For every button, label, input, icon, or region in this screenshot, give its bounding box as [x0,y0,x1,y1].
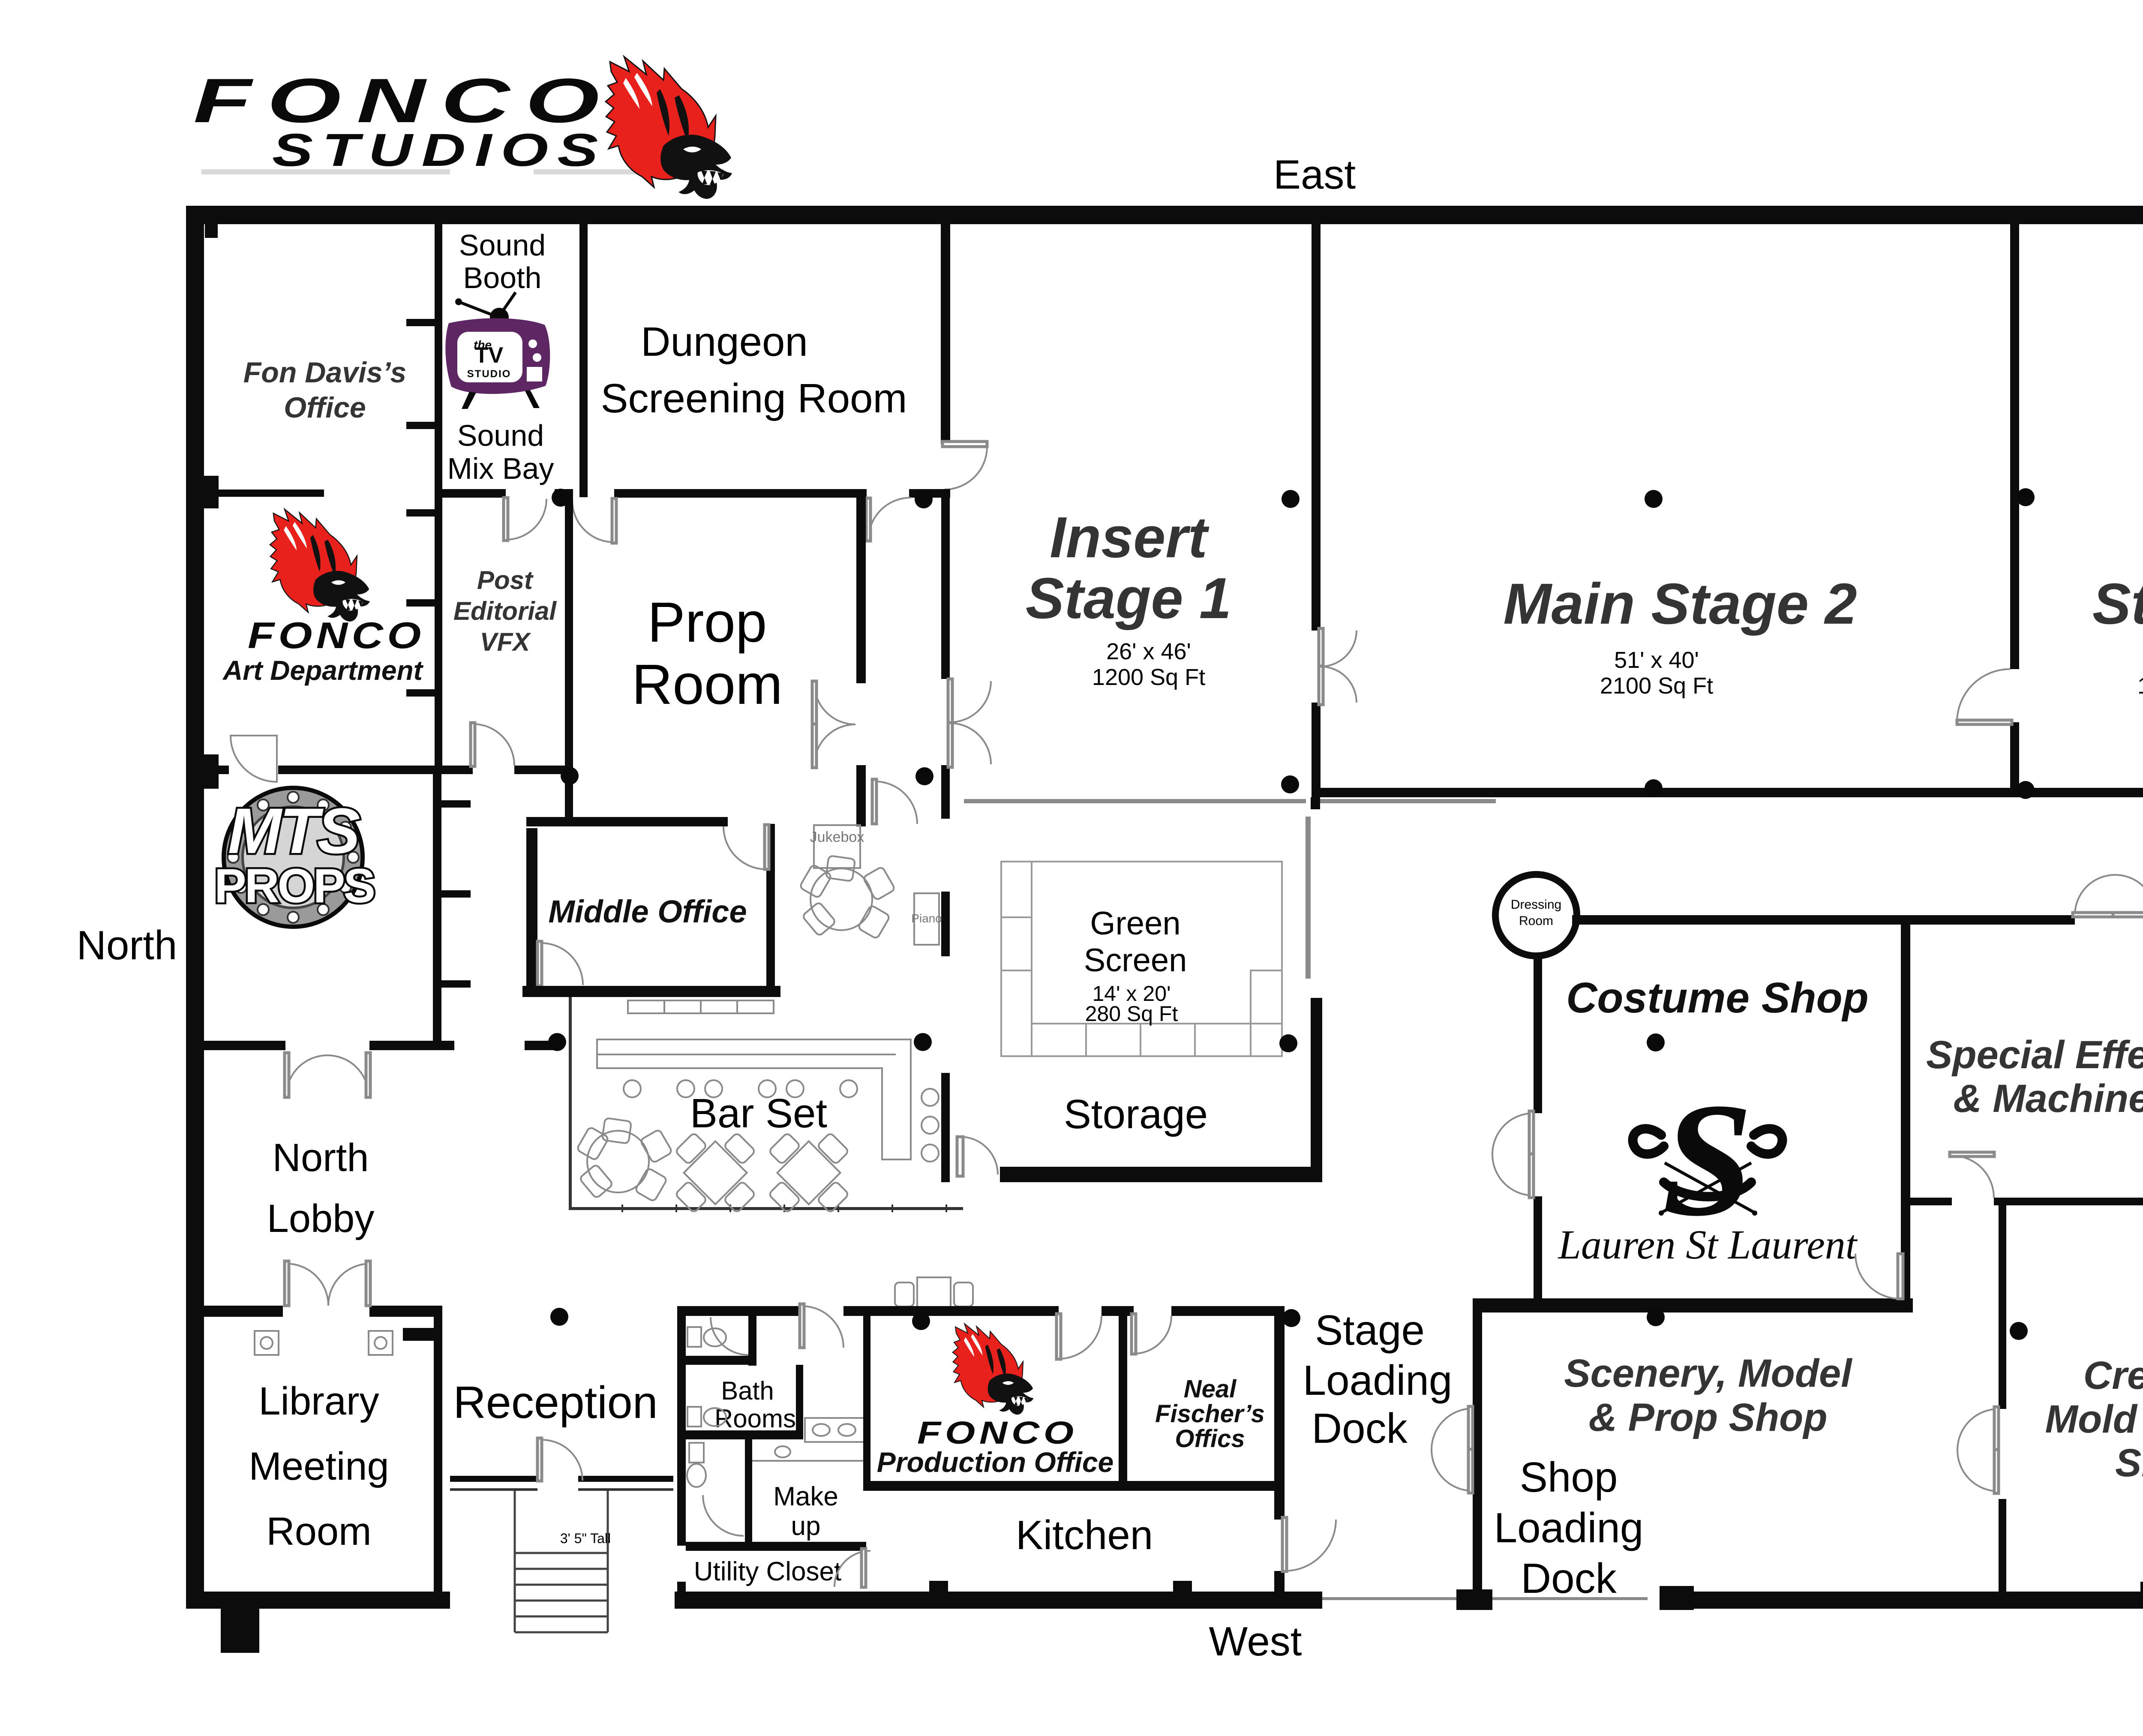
svg-text:Make: Make [773,1482,838,1511]
svg-text:up: up [791,1511,821,1541]
svg-text:Production Office: Production Office [877,1446,1114,1478]
svg-text:Middle Office: Middle Office [548,894,747,929]
svg-text:26' x 46': 26' x 46' [1106,639,1191,664]
svg-text:North: North [77,922,177,968]
svg-text:Office: Office [284,391,366,424]
svg-text:Main Stage 2: Main Stage 2 [1503,571,1857,636]
svg-text:Prop: Prop [648,591,767,654]
svg-text:Fon Davis’s: Fon Davis’s [243,356,406,389]
svg-text:Meeting: Meeting [249,1445,389,1488]
svg-text:Screen: Screen [1084,942,1187,979]
svg-text:FONCO: FONCO [917,1415,1078,1451]
svg-text:Offics: Offics [1175,1425,1245,1453]
svg-text:West: West [1209,1619,1302,1664]
svg-text:Costume Shop: Costume Shop [1566,974,1869,1022]
svg-text:Shop: Shop [2115,1441,2143,1485]
svg-text:51' x 40': 51' x 40' [1614,647,1699,673]
svg-text:Insert: Insert [1050,505,1210,570]
svg-text:Jukebox: Jukebox [810,829,864,845]
svg-text:FONCO: FONCO [248,615,425,656]
svg-text:Neal: Neal [1184,1375,1237,1403]
svg-text:Utility Closet: Utility Closet [694,1557,842,1586]
svg-text:Dock: Dock [1312,1405,1408,1452]
svg-text:& Machine Shop: & Machine Shop [1953,1077,2143,1120]
svg-text:Piano: Piano [911,912,942,925]
svg-text:Library: Library [258,1379,379,1423]
svg-text:MTS: MTS [228,795,360,867]
svg-text:TV: TV [475,343,504,368]
svg-text:Stage 1: Stage 1 [1026,566,1231,631]
svg-text:Room: Room [1519,914,1553,928]
svg-text:Stage: Stage [1315,1307,1425,1354]
svg-text:Dungeon: Dungeon [641,319,808,365]
svg-text:PROPS: PROPS [214,859,374,913]
svg-text:& Prop Shop: & Prop Shop [1588,1396,1827,1439]
svg-text:Booth: Booth [463,261,542,294]
svg-text:Dressing: Dressing [1511,898,1561,912]
svg-text:Shop: Shop [1520,1454,1618,1501]
svg-text:Reception: Reception [453,1377,657,1428]
svg-text:Scenery, Model: Scenery, Model [1564,1352,1853,1395]
svg-text:Green: Green [1090,905,1180,942]
svg-text:Loading: Loading [1303,1357,1453,1404]
svg-text:Room: Room [632,653,783,716]
svg-text:Bar Set: Bar Set [690,1090,827,1136]
svg-text:Mold & Paint: Mold & Paint [2045,1397,2143,1441]
svg-text:Dock: Dock [1521,1555,1617,1602]
svg-text:STUDIOS: STUDIOS [272,124,607,176]
svg-text:Fischer’s: Fischer’s [1155,1400,1265,1428]
svg-text:1200 Sq Ft: 1200 Sq Ft [1092,664,1205,690]
svg-text:Lobby: Lobby [267,1197,375,1240]
svg-text:STUDIO: STUDIO [467,368,511,380]
svg-text:Kitchen: Kitchen [1016,1512,1153,1558]
svg-text:2100 Sq Ft: 2100 Sq Ft [1600,673,1713,699]
svg-text:Storage: Storage [1064,1091,1208,1137]
svg-text:Editorial: Editorial [453,597,557,625]
svg-text:1100 Sq Ft: 1100 Sq Ft [2137,673,2143,699]
svg-text:VFX: VFX [480,628,532,656]
svg-text:Room: Room [266,1510,371,1553]
svg-text:Lauren St Laurent: Lauren St Laurent [1558,1222,1858,1267]
svg-text:Screening Room: Screening Room [600,375,907,421]
svg-text:Mix Bay: Mix Bay [447,452,554,485]
svg-text:Sound: Sound [459,228,546,262]
svg-text:Special Effects Lab: Special Effects Lab [1926,1033,2143,1077]
svg-text:280 Sq Ft: 280 Sq Ft [1085,1002,1178,1026]
svg-text:Sound: Sound [457,419,544,452]
svg-text:North: North [273,1136,369,1180]
svg-text:Art Department: Art Department [222,655,424,686]
svg-text:Creature: Creature [2083,1354,2143,1397]
svg-text:Post: Post [477,566,534,595]
svg-text:Bath: Bath [721,1376,774,1405]
svg-text:East: East [1273,152,1356,198]
svg-text:Loading: Loading [1494,1504,1644,1551]
svg-text:3' 5" Tall: 3' 5" Tall [560,1531,611,1546]
svg-text:Stage 3: Stage 3 [2092,571,2143,636]
